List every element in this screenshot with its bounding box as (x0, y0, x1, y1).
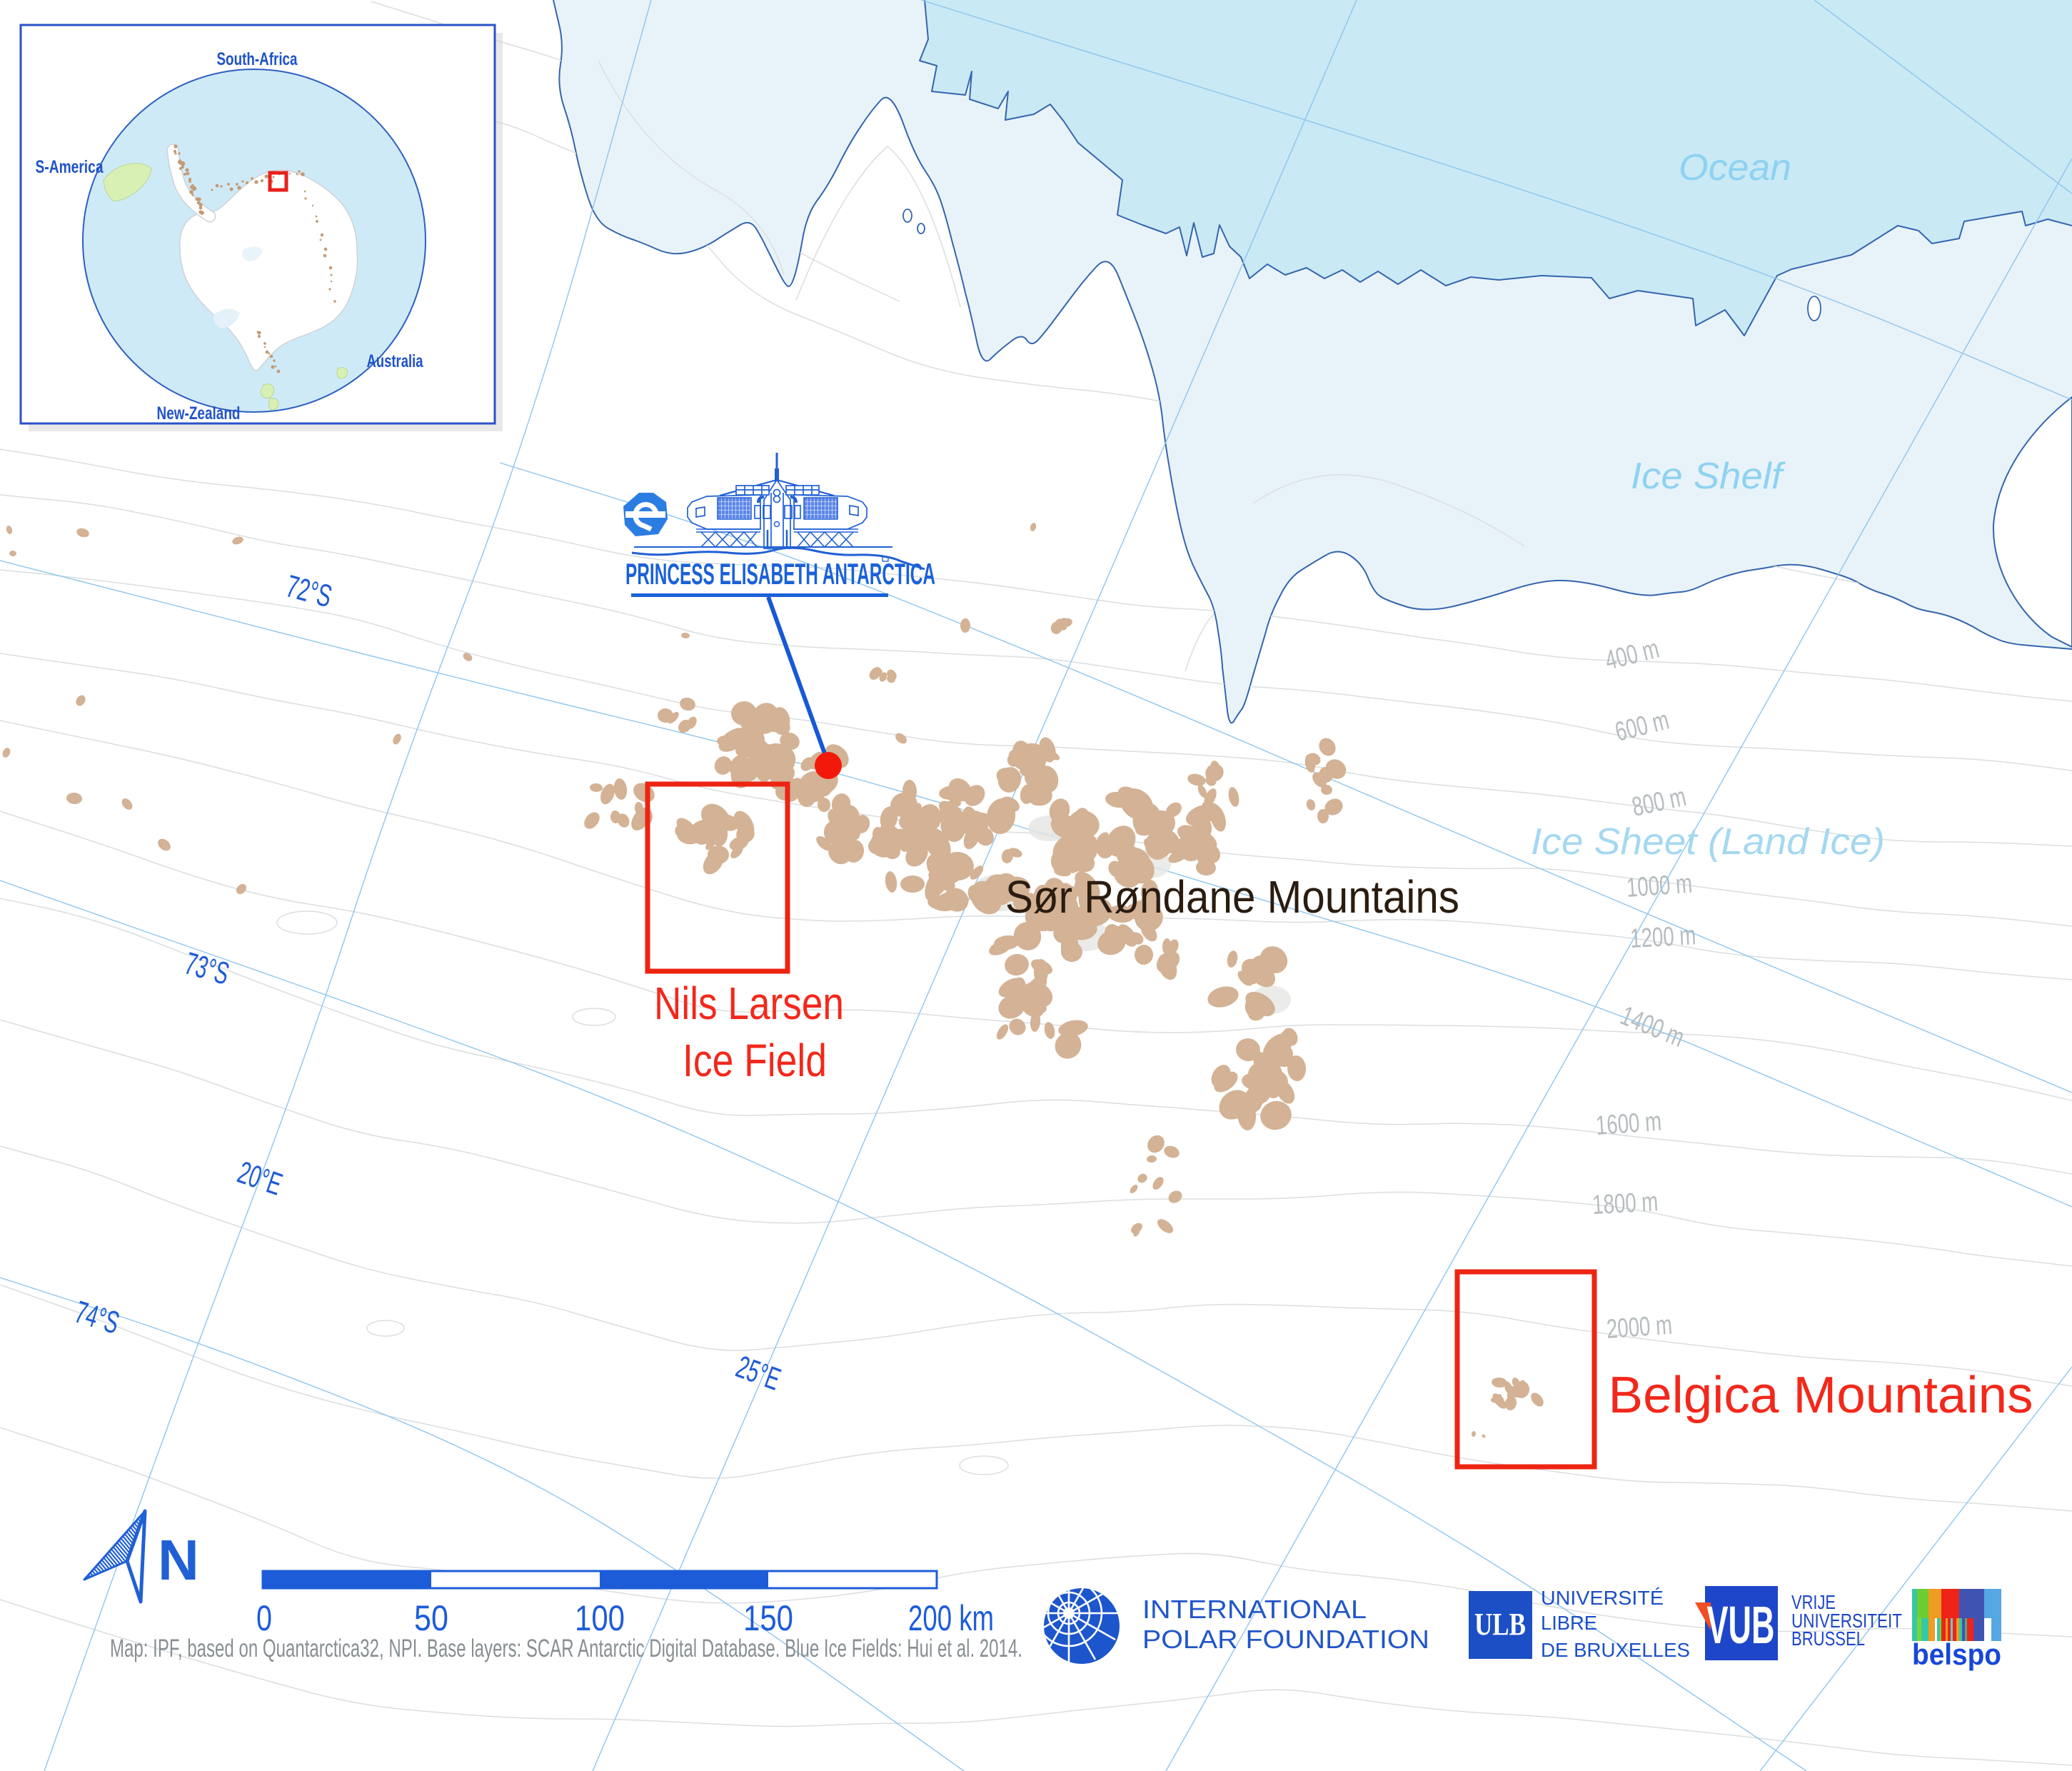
svg-text:DE BRUXELLES: DE BRUXELLES (1541, 1639, 1690, 1661)
svg-text:belspo: belspo (1912, 1637, 2001, 1671)
svg-text:1800 m: 1800 m (1591, 1187, 1659, 1220)
svg-text:PRINCESS ELISABETH ANTARCTICA: PRINCESS ELISABETH ANTARCTICA (625, 557, 935, 591)
svg-text:VUB: VUB (1707, 1595, 1775, 1655)
svg-text:0: 0 (256, 1598, 272, 1638)
svg-text:Belgica Mountains: Belgica Mountains (1609, 1367, 2033, 1424)
svg-text:LIBRE: LIBRE (1541, 1612, 1597, 1634)
svg-text:Sør Røndane Mountains: Sør Røndane Mountains (1005, 871, 1459, 923)
svg-text:UNIVERSITÉ: UNIVERSITÉ (1541, 1587, 1664, 1609)
svg-text:Nils Larsen: Nils Larsen (654, 978, 844, 1029)
svg-text:Ice Sheet (Land Ice): Ice Sheet (Land Ice) (1531, 821, 1885, 863)
svg-text:ULB: ULB (1474, 1607, 1526, 1642)
svg-text:S-America: S-America (36, 157, 104, 177)
svg-text:New-Zealand: New-Zealand (157, 403, 241, 423)
svg-text:50: 50 (414, 1598, 448, 1638)
svg-text:1200 m: 1200 m (1629, 920, 1696, 954)
svg-text:BRUSSEL: BRUSSEL (1791, 1627, 1865, 1650)
svg-text:INTERNATIONAL: INTERNATIONAL (1142, 1595, 1367, 1624)
svg-text:POLAR FOUNDATION: POLAR FOUNDATION (1142, 1625, 1429, 1654)
svg-text:1000 m: 1000 m (1626, 869, 1694, 903)
svg-text:Ocean: Ocean (1679, 147, 1791, 189)
svg-text:2000 m: 2000 m (1606, 1310, 1674, 1345)
svg-text:South-Africa: South-Africa (217, 49, 298, 69)
svg-text:Map: IPF, based on Quantarctic: Map: IPF, based on Quantarctica32, NPI. … (110, 1635, 1022, 1662)
svg-text:150: 150 (743, 1598, 793, 1638)
svg-text:200 km: 200 km (908, 1598, 994, 1638)
svg-text:1600 m: 1600 m (1595, 1107, 1663, 1141)
svg-text:N: N (158, 1528, 199, 1592)
svg-text:Australia: Australia (367, 351, 424, 371)
svg-text:100: 100 (575, 1598, 625, 1638)
svg-text:Ice Shelf: Ice Shelf (1631, 456, 1786, 497)
svg-text:Ice Field: Ice Field (683, 1035, 827, 1086)
